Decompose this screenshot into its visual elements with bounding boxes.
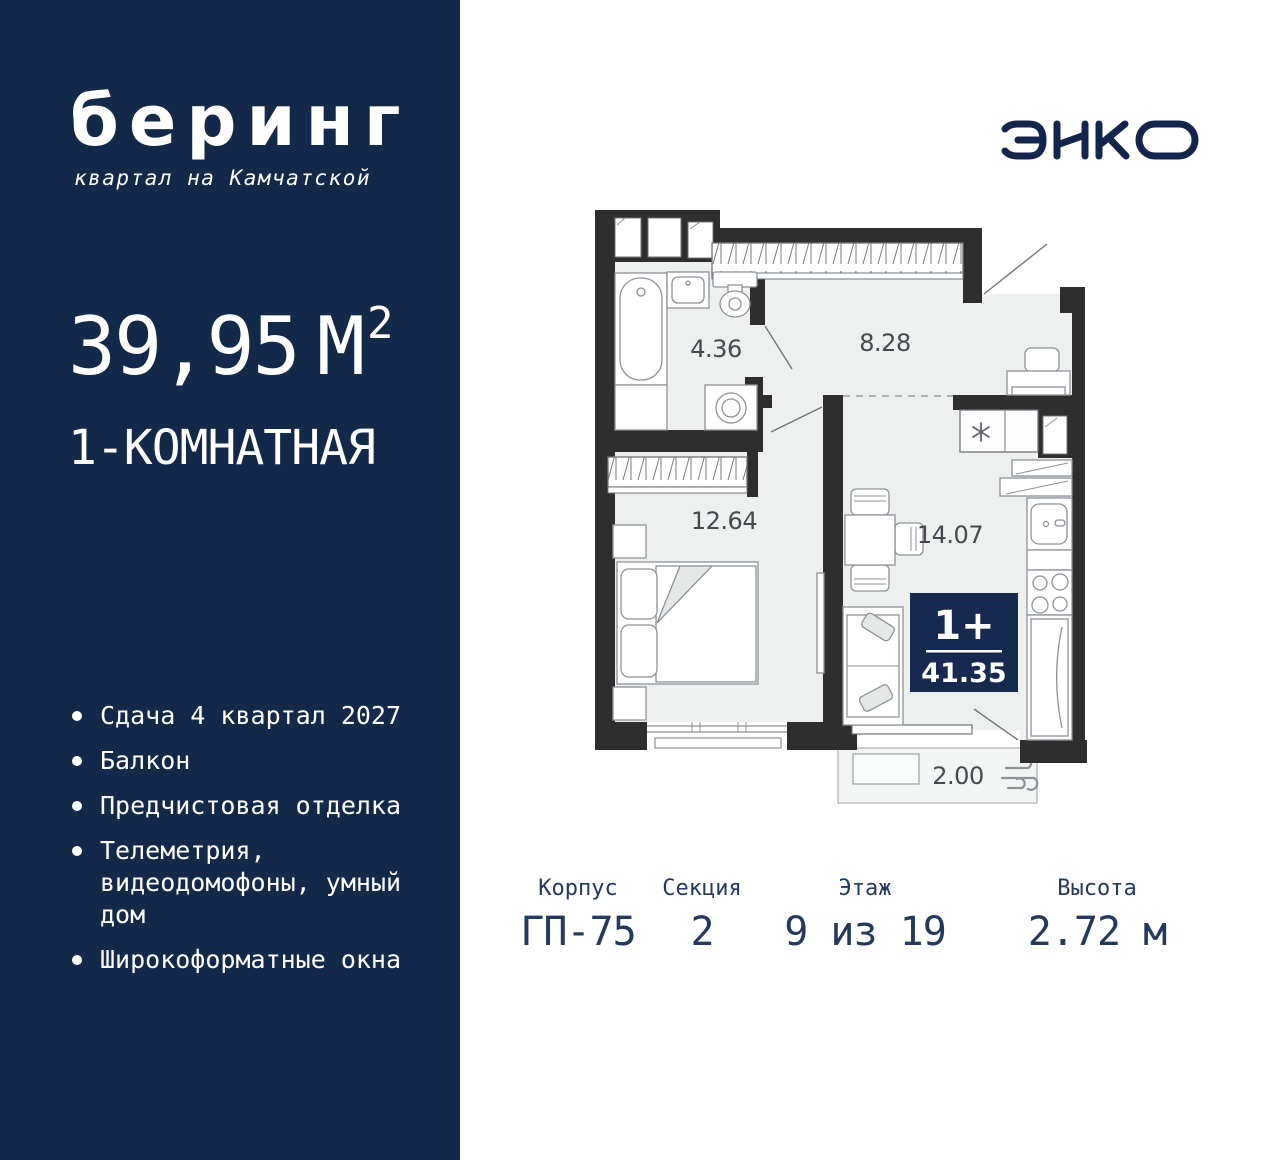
feature-text: Широкоформатные окна	[100, 944, 401, 976]
feature-item: Телеметрия, видеодомофоны, умный дом	[72, 835, 417, 931]
bathroom-area-label: 4.36	[690, 335, 741, 363]
floor-plan-drawing: 4.36 8.28 12.64 14.07 2.00 1+ 41.35	[560, 195, 1140, 835]
hallway-area-label: 8.28	[859, 329, 910, 357]
enko-logo-icon	[995, 118, 1205, 162]
balcony-area-label: 2.00	[932, 762, 983, 790]
bedroom-window	[647, 722, 787, 750]
apartment-card: { "sidebar": { "logo_title": "беринг", "…	[0, 0, 1280, 1160]
apartment-badge: 1+ 41.35	[910, 593, 1018, 692]
bedroom-area-label: 12.64	[691, 507, 757, 535]
bullet-dot-icon	[72, 846, 82, 856]
feature-item: Сдача 4 квартал 2027	[72, 700, 417, 732]
apartment-area: 39,95М2	[68, 300, 392, 393]
info-height-label: Высота	[1028, 876, 1167, 901]
wardrobe-bedroom	[608, 457, 747, 493]
info-building: Корпус ГП-75	[520, 876, 635, 955]
project-logo-title: беринг	[70, 86, 410, 156]
info-building-label: Корпус	[520, 876, 635, 901]
area-superscript: 2	[367, 298, 394, 349]
info-section-value: 2	[662, 909, 741, 955]
project-logo-subtitle: квартал на Камчатской	[74, 166, 410, 190]
info-section: Секция 2	[662, 876, 741, 955]
project-logo: беринг квартал на Камчатской	[70, 86, 410, 190]
badge-type-label: 1+	[933, 603, 994, 649]
area-value: 39,95	[68, 300, 299, 393]
sidebar: беринг квартал на Камчатской 39,95М2 1-К…	[0, 0, 460, 1160]
feature-item: Широкоформатные окна	[72, 944, 417, 976]
balcony-door	[852, 725, 972, 734]
info-building-value: ГП-75	[520, 909, 635, 955]
feature-item: Предчистовая отделка	[72, 790, 417, 822]
bullet-dot-icon	[72, 801, 82, 811]
bullet-dot-icon	[72, 711, 82, 721]
area-unit: М	[317, 300, 365, 393]
feature-text: Сдача 4 квартал 2027	[100, 700, 401, 732]
features-list: Сдача 4 квартал 2027 Балкон Предчистовая…	[72, 700, 417, 989]
kitchen-living-area-label: 14.07	[917, 521, 983, 549]
badge-total-area-label: 41.35	[921, 658, 1006, 689]
feature-text: Предчистовая отделка	[100, 790, 401, 822]
feature-text: Телеметрия, видеодомофоны, умный дом	[100, 835, 417, 931]
feature-text: Балкон	[100, 745, 190, 777]
bullet-dot-icon	[72, 955, 82, 965]
info-height: Высота 2.72 м	[1028, 876, 1167, 955]
info-floor: Этаж 9 из 19	[784, 876, 946, 955]
info-section-label: Секция	[662, 876, 741, 901]
bullet-dot-icon	[72, 756, 82, 766]
info-height-value: 2.72 м	[1028, 909, 1167, 955]
rooms-count-label: 1-КОМНАТНАЯ	[68, 420, 375, 476]
info-floor-label: Этаж	[784, 876, 946, 901]
floor-plan: 4.36 8.28 12.64 14.07 2.00 1+ 41.35	[560, 195, 1140, 839]
developer-logo-enko	[995, 118, 1205, 166]
info-floor-value: 9 из 19	[784, 909, 946, 955]
feature-item: Балкон	[72, 745, 417, 777]
